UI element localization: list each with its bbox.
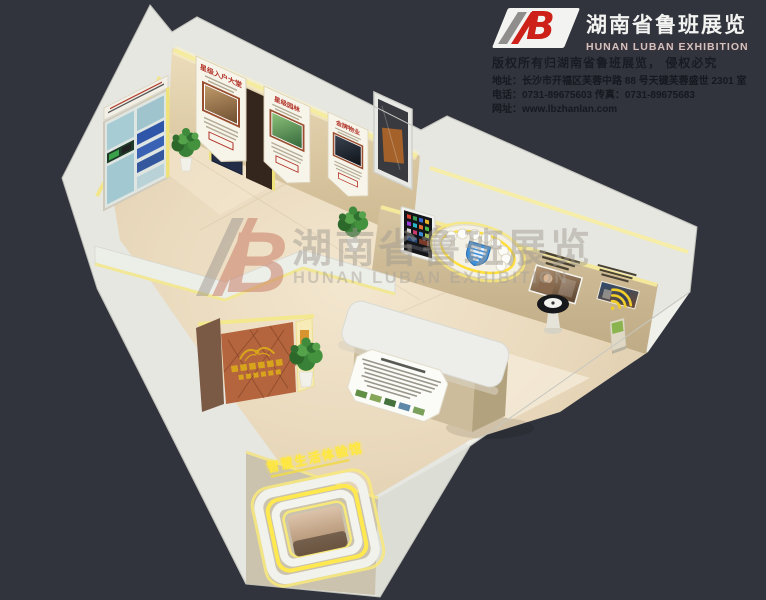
company-name-en: HUNAN LUBAN EXHIBITION [586,41,749,53]
copyright-line: 版权所有归湖南省鲁班展览， 侵权必究 [492,54,764,71]
phone-fax-line: 电话：0731-89675603 传真：0731-89675683 [492,89,764,103]
brand-header: B 湖南省鲁班展览 HUNAN LUBAN EXHIBITION [492,6,749,53]
kiosk [610,318,626,354]
company-name-cn: 湖南省鲁班展览 [586,9,749,39]
watermark-company-en: HUNAN LUBAN EXHIBITION [293,269,569,287]
watermark-logo-letter: B [226,215,288,311]
contact-block: 版权所有归湖南省鲁班展览， 侵权必究 地址：长沙市开福区芙蓉中路 88 号天键芙… [492,54,764,118]
company-logo: B [492,6,580,50]
brand-text: 湖南省鲁班展览 HUNAN LUBAN EXHIBITION [586,6,749,53]
watermark-company-cn: 湖南省鲁班展览 [292,227,593,271]
page: 星级入户大堂 星级园林 金牌物业 [0,0,766,600]
logo-letter: B [526,4,555,48]
glass-display-case [374,92,412,189]
address-line: 地址：长沙市开福区芙蓉中路 88 号天键芙蓉盛世 2301 室 [492,75,764,89]
website-line: 网址：www.lbzhanlan.com [492,103,764,117]
